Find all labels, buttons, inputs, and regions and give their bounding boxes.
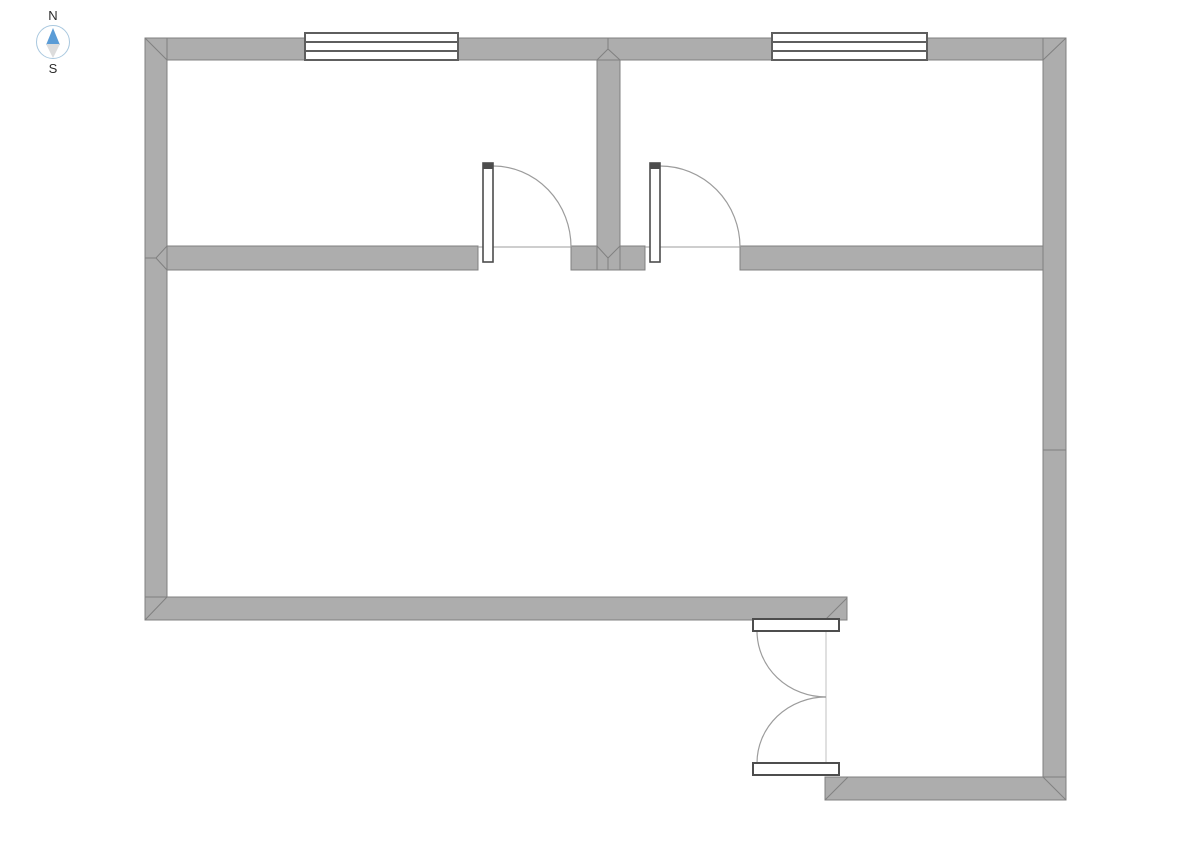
- wall-divider-top-rooms[interactable]: [597, 60, 620, 270]
- floor-plan-canvas: [0, 0, 1190, 841]
- compass-north-label: N: [48, 8, 57, 23]
- wall-middle-right[interactable]: [740, 246, 1043, 270]
- wall-middle-center-left[interactable]: [571, 246, 597, 270]
- window-room-right[interactable]: [772, 33, 927, 60]
- wall-right[interactable]: [1043, 38, 1066, 800]
- door-room-right-leaf[interactable]: [650, 163, 660, 262]
- door-room-left-leaf[interactable]: [483, 163, 493, 262]
- wall-bottom-entry[interactable]: [825, 777, 1066, 800]
- wall-middle-left[interactable]: [167, 246, 478, 270]
- door-room-right-swing-arc: [660, 166, 740, 247]
- wall-bottom-main[interactable]: [145, 597, 847, 620]
- compass: N S: [33, 8, 73, 76]
- door-room-right-leaf-cap: [650, 163, 660, 169]
- wall-middle-center-right[interactable]: [620, 246, 645, 270]
- compass-ring-icon: [36, 25, 70, 59]
- door-room-left-leaf-cap: [483, 163, 493, 169]
- window-room-left[interactable]: [305, 33, 458, 60]
- compass-needle-south-icon: [46, 44, 60, 58]
- entry-double-door-swing-arc: [757, 631, 826, 697]
- entry-door-leaf-outer[interactable]: [753, 763, 839, 775]
- entry-double-door-swing-arc: [757, 697, 826, 763]
- floor-plan-page: N S: [0, 0, 1190, 841]
- compass-needle-north-icon: [46, 28, 60, 45]
- wall-left[interactable]: [145, 38, 167, 620]
- entry-door-leaf-inner[interactable]: [753, 619, 839, 631]
- door-room-left-swing-arc: [493, 166, 571, 247]
- compass-south-label: S: [49, 61, 58, 76]
